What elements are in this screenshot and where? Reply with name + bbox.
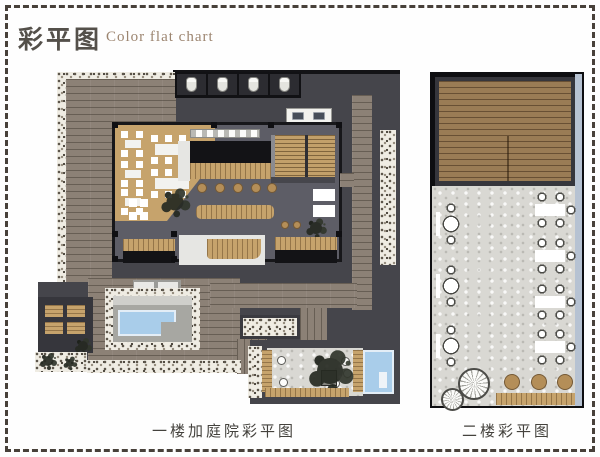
lounge-seats	[129, 199, 149, 229]
tree-icon	[317, 358, 343, 384]
plant-icon	[78, 341, 88, 351]
pebble-strip-bottom	[87, 360, 241, 373]
plan-first-floor	[35, 70, 400, 404]
garden-stool	[341, 357, 350, 366]
pillar	[336, 122, 342, 128]
table-group	[526, 190, 576, 230]
toilet-icon	[217, 77, 228, 92]
bar-shelf	[190, 129, 260, 138]
staircase	[271, 135, 335, 177]
table-group	[526, 236, 576, 276]
plant-icon	[43, 356, 53, 366]
bar-stool	[197, 183, 207, 193]
bar-pass	[178, 141, 190, 181]
garden-stool	[277, 356, 286, 365]
pillar	[171, 231, 177, 237]
caption-first-floor: 一楼加庭院彩平图	[118, 420, 330, 441]
pebble-strip-left	[57, 72, 66, 312]
toilet-icon	[279, 77, 290, 92]
pebble-strip-right	[380, 130, 396, 265]
bar-counter	[190, 163, 274, 179]
terrace-bench	[496, 393, 575, 405]
stool	[293, 221, 301, 229]
stair-divider	[305, 135, 308, 177]
garden-bench	[353, 350, 363, 392]
toilet-stall	[270, 74, 299, 95]
pillar	[268, 122, 274, 128]
pergola-room	[38, 297, 93, 353]
round-table	[504, 374, 520, 390]
pillar	[112, 122, 118, 128]
table-group	[526, 282, 576, 322]
bar-stool	[215, 183, 225, 193]
entry-steps	[207, 239, 261, 259]
table-group	[526, 327, 576, 367]
toilet-stall	[177, 74, 208, 95]
boardwalk	[352, 95, 372, 310]
bar-back-counter	[190, 141, 274, 163]
slat-bench	[45, 305, 63, 317]
window-bench	[123, 239, 175, 251]
plant-icon	[310, 222, 322, 234]
main-hall	[112, 122, 342, 262]
toilet-stall	[208, 74, 239, 95]
plant-icon	[66, 359, 74, 367]
slat-bench	[45, 322, 63, 334]
dining-table-group	[121, 131, 145, 157]
pebble-scatter	[248, 346, 262, 398]
garden-bench	[262, 350, 272, 392]
reception-desk	[286, 108, 332, 123]
pillar	[171, 256, 177, 262]
sofa-table-group	[313, 189, 337, 219]
monitor-icon	[292, 112, 304, 120]
glass-wall-strip	[575, 74, 582, 406]
parasol-icon	[441, 388, 464, 411]
roof-deck	[439, 81, 571, 181]
garden-pool	[363, 350, 394, 394]
slat-bench	[67, 322, 85, 334]
bar-stool	[267, 183, 277, 193]
caption-second-floor: 二楼彩平图	[430, 420, 584, 441]
round-table-group	[436, 324, 462, 368]
page-subtitle: Color flat chart	[106, 29, 214, 46]
door-opening	[179, 235, 203, 265]
deck-divider	[507, 136, 509, 181]
wood-deck-top	[66, 79, 176, 122]
page-title: 彩平图	[18, 20, 102, 56]
pillar	[336, 231, 342, 237]
monitor-icon	[313, 112, 325, 120]
slat-bench	[67, 305, 85, 317]
deck-path	[210, 283, 357, 308]
garden-stool	[279, 378, 288, 387]
bridge	[340, 173, 354, 187]
toilet-icon	[186, 77, 197, 92]
toilet-icon	[248, 77, 259, 92]
pool-ledge	[113, 296, 192, 305]
plan-second-floor	[430, 72, 584, 408]
pool-step	[379, 372, 387, 388]
restroom-block	[175, 72, 301, 98]
stair-landing	[271, 177, 335, 183]
pool-step	[161, 322, 176, 336]
page: 彩平图 Color flat chart	[0, 0, 600, 457]
stool	[281, 221, 289, 229]
dining-table-group	[121, 161, 145, 187]
round-table	[531, 374, 547, 390]
wall-segment	[123, 251, 175, 263]
pebble-patch	[240, 315, 300, 339]
round-table	[557, 374, 573, 390]
pillar	[211, 122, 217, 128]
pillar	[112, 231, 118, 237]
long-bench	[196, 205, 274, 219]
bar-stool	[233, 183, 243, 193]
pillar	[112, 256, 118, 262]
toilet-stall	[239, 74, 270, 95]
garden-stool	[343, 369, 352, 378]
window-bench	[275, 237, 337, 250]
round-table-group	[436, 264, 462, 308]
pebble-garden	[35, 352, 87, 372]
round-table-group	[436, 202, 462, 246]
bar-stool	[251, 183, 261, 193]
wall-segment	[275, 250, 337, 263]
tree-icon	[167, 194, 184, 211]
garden-bench	[265, 388, 349, 397]
